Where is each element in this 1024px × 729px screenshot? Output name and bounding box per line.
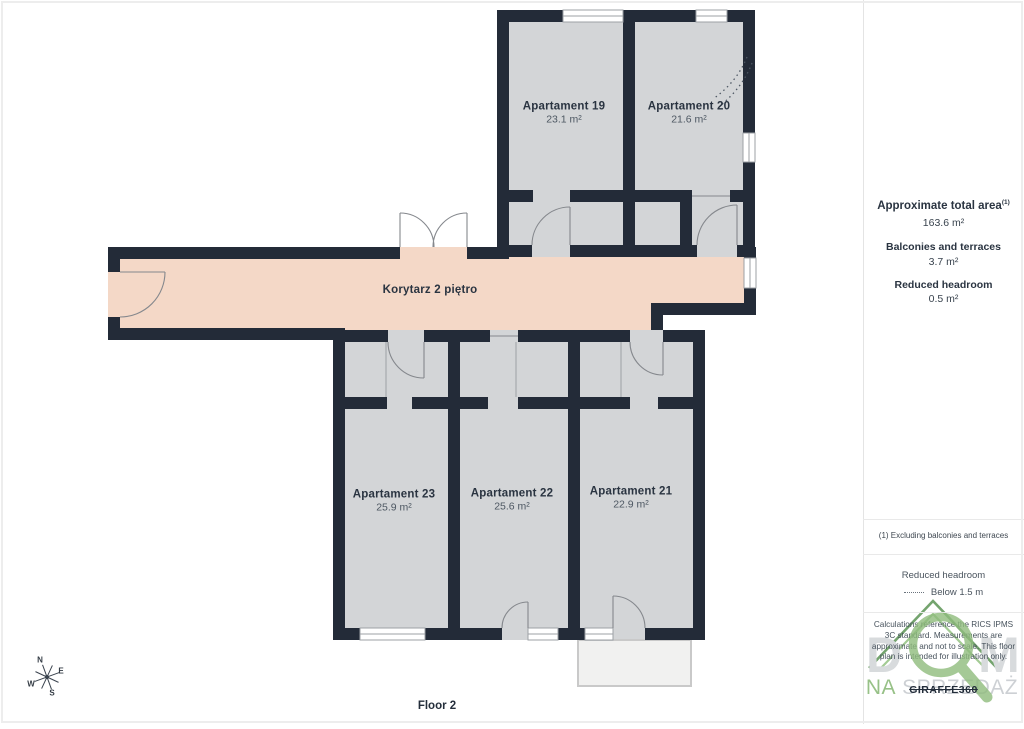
page: Apartament 19 23.1 m² Apartament 20 21.6…	[0, 0, 1024, 724]
watermark-magnifier-icon	[0, 0, 1024, 724]
giraffe360-logo: GIRAFFE360	[863, 684, 1024, 696]
